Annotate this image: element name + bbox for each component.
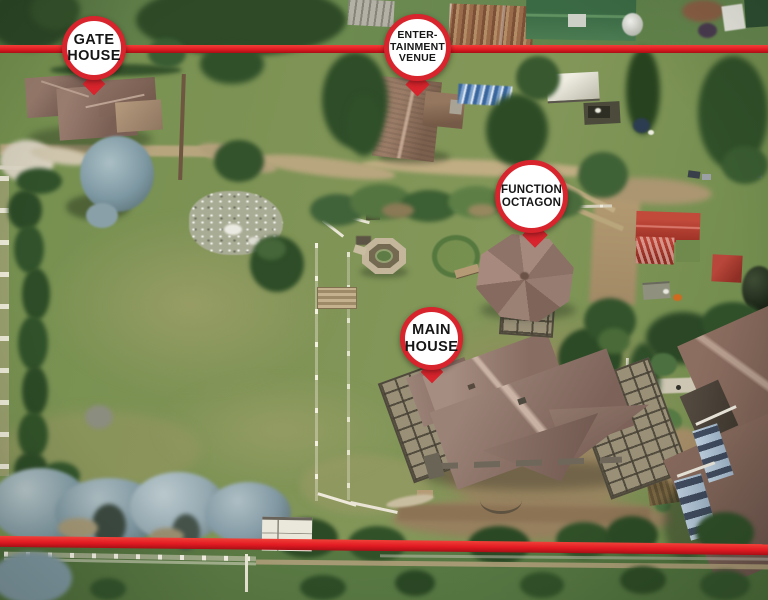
pin-label-line: ENTER- — [397, 30, 437, 42]
stone-gazebo-core — [375, 249, 393, 263]
vehicle — [688, 170, 701, 179]
pin-main-house: MAIN HOUSE — [400, 307, 463, 370]
bare-patch — [468, 204, 496, 217]
gray-bush — [85, 405, 113, 429]
hedge — [18, 412, 48, 458]
pin-label-line: GATE — [74, 32, 115, 48]
hedge — [8, 190, 42, 230]
tree — [578, 152, 628, 198]
gazebo-steps — [353, 244, 367, 255]
hedge — [18, 316, 48, 370]
green-shed-corner — [744, 0, 768, 28]
white-object — [595, 108, 601, 113]
tree — [148, 38, 186, 68]
tree — [90, 578, 126, 600]
hedge — [14, 225, 44, 273]
stable-courtyard — [676, 240, 700, 262]
aerial-photo: GATE HOUSE ENTER- TAINMENT VENUE FUNCTIO… — [0, 0, 768, 600]
blue-green-tree-small — [86, 203, 118, 228]
hedge — [22, 366, 48, 416]
tree — [700, 570, 750, 600]
debris-white — [224, 224, 242, 235]
pin-label-line: MAIN — [412, 322, 451, 338]
pin-label-line: OCTAGON — [502, 197, 561, 210]
tree — [300, 575, 346, 600]
blue-green-tree — [80, 136, 154, 212]
wooden-bridge — [317, 287, 357, 309]
bare-patch — [382, 203, 414, 218]
garden-patch — [682, 0, 724, 22]
pin-function-octagon: FUNCTION OCTAGON — [495, 160, 568, 233]
pin-gate-house: GATE HOUSE — [62, 16, 126, 80]
octagon-apex — [520, 272, 529, 280]
tree — [214, 140, 264, 182]
tree — [620, 566, 666, 594]
white-tent — [721, 4, 745, 32]
red-shed-roof — [711, 254, 742, 283]
white-fence-left — [315, 243, 318, 501]
gate-house-wing — [115, 99, 163, 132]
pin-circle: GATE HOUSE — [62, 16, 126, 80]
tree-cluster — [486, 94, 548, 166]
roof-panel — [568, 14, 586, 27]
pin-circle: ENTER- TAINMENT VENUE — [384, 14, 451, 81]
tree — [722, 146, 768, 184]
tree — [520, 572, 564, 598]
pin-label-line: VENUE — [399, 53, 436, 65]
white-object — [648, 130, 654, 135]
curved-garden-wall — [480, 487, 522, 514]
pin-circle: MAIN HOUSE — [400, 307, 463, 370]
purple-bush — [698, 23, 717, 38]
white-dome-tent — [622, 13, 643, 36]
pin-label-line: FUNCTION — [501, 184, 562, 197]
tree — [395, 570, 435, 596]
vehicle — [702, 174, 711, 180]
tree-highlight — [256, 238, 286, 260]
white-object — [663, 289, 669, 294]
hedge — [22, 268, 50, 320]
pin-circle: FUNCTION OCTAGON — [495, 160, 568, 233]
tree-gap-tan — [58, 518, 98, 538]
boundary-wall — [178, 74, 186, 180]
gate-post — [245, 554, 248, 592]
orange-object — [673, 294, 682, 301]
left-boundary-path — [0, 176, 9, 476]
pin-label-line: HOUSE — [67, 48, 121, 64]
tree — [516, 56, 560, 100]
lamp-post — [676, 385, 681, 390]
red-stable-wing — [636, 236, 675, 264]
pin-entertainment-venue: ENTER- TAINMENT VENUE — [384, 14, 451, 81]
tree — [346, 94, 382, 156]
pin-label-line: HOUSE — [405, 339, 459, 355]
